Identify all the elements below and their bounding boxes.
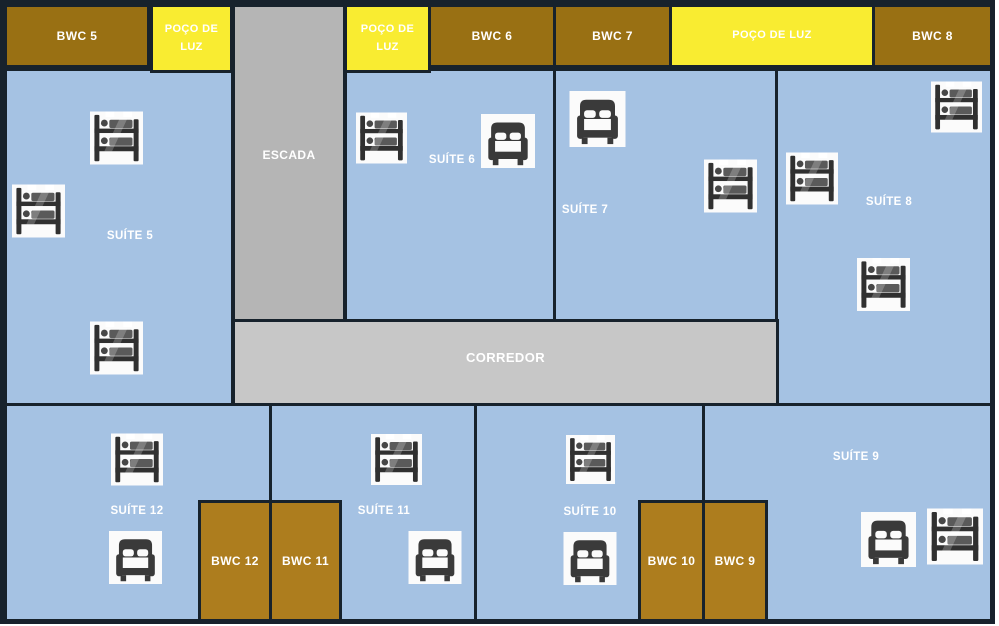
room-bwc-6: BWC 6	[428, 4, 556, 68]
bwc8-label: BWC 8	[912, 27, 953, 46]
poco-luz-a-label: POÇO DE LUZ	[153, 21, 230, 55]
double-bed-icon	[406, 531, 464, 584]
bunk-bed-icon	[927, 506, 983, 567]
suite12-label: SUÍTE 12	[110, 505, 163, 517]
double-bed-icon	[106, 531, 165, 584]
bwc7-label: BWC 7	[592, 27, 633, 46]
suite7-label: SUÍTE 7	[562, 204, 608, 216]
room-bwc-8: BWC 8	[872, 4, 993, 68]
room-bwc-7: BWC 7	[553, 4, 672, 68]
room-bwc-10: BWC 10	[638, 500, 705, 622]
bunk-bed-icon	[931, 77, 982, 137]
bunk-bed-icon	[786, 149, 838, 208]
room-suite-6	[344, 68, 556, 322]
room-poco-de-luz-right: POÇO DE LUZ	[669, 4, 875, 68]
room-bwc-12: BWC 12	[198, 500, 272, 622]
room-corredor: CORREDOR	[232, 319, 779, 406]
bunk-bed-icon	[566, 431, 615, 488]
bwc10-label: BWC 10	[648, 552, 696, 571]
bwc12-label: BWC 12	[211, 552, 259, 571]
double-bed-icon	[478, 114, 538, 168]
room-bwc-9: BWC 9	[702, 500, 768, 622]
suite5-label: SUÍTE 5	[107, 230, 153, 242]
bwc11-label: BWC 11	[282, 552, 329, 571]
bwc6-label: BWC 6	[472, 27, 513, 46]
bunk-bed-icon	[356, 109, 407, 167]
bunk-bed-icon	[90, 319, 143, 377]
double-bed-icon	[567, 91, 628, 147]
double-bed-icon	[859, 512, 918, 567]
corredor-label: CORREDOR	[466, 348, 545, 368]
room-bwc-11: BWC 11	[269, 500, 342, 622]
suite6-label: SUÍTE 6	[429, 154, 475, 166]
bwc9-label: BWC 9	[715, 552, 756, 571]
escada-label: ESCADA	[262, 146, 315, 165]
poco-luz-c-label: POÇO DE LUZ	[722, 27, 822, 44]
room-escada: ESCADA	[232, 4, 346, 322]
bunk-bed-icon	[111, 431, 163, 488]
room-bwc-5: BWC 5	[4, 4, 150, 68]
suite8-label: SUÍTE 8	[866, 196, 912, 208]
bunk-bed-icon	[857, 256, 910, 313]
bwc5-label: BWC 5	[57, 27, 98, 46]
bunk-bed-icon	[90, 108, 143, 168]
suite10-label: SUÍTE 10	[563, 506, 616, 518]
floor-plan: ESCADA CORREDOR BWC 5 POÇO DE LUZ POÇO D…	[0, 0, 999, 626]
bunk-bed-icon	[704, 157, 757, 215]
suite9-label: SUÍTE 9	[833, 451, 879, 463]
room-poco-de-luz-middle: POÇO DE LUZ	[344, 4, 431, 73]
bunk-bed-icon	[371, 431, 422, 488]
bunk-bed-icon	[12, 180, 65, 242]
double-bed-icon	[561, 532, 619, 585]
suite11-label: SUÍTE 11	[358, 505, 410, 517]
poco-luz-b-label: POÇO DE LUZ	[347, 21, 428, 55]
room-poco-de-luz-left: POÇO DE LUZ	[150, 4, 233, 73]
